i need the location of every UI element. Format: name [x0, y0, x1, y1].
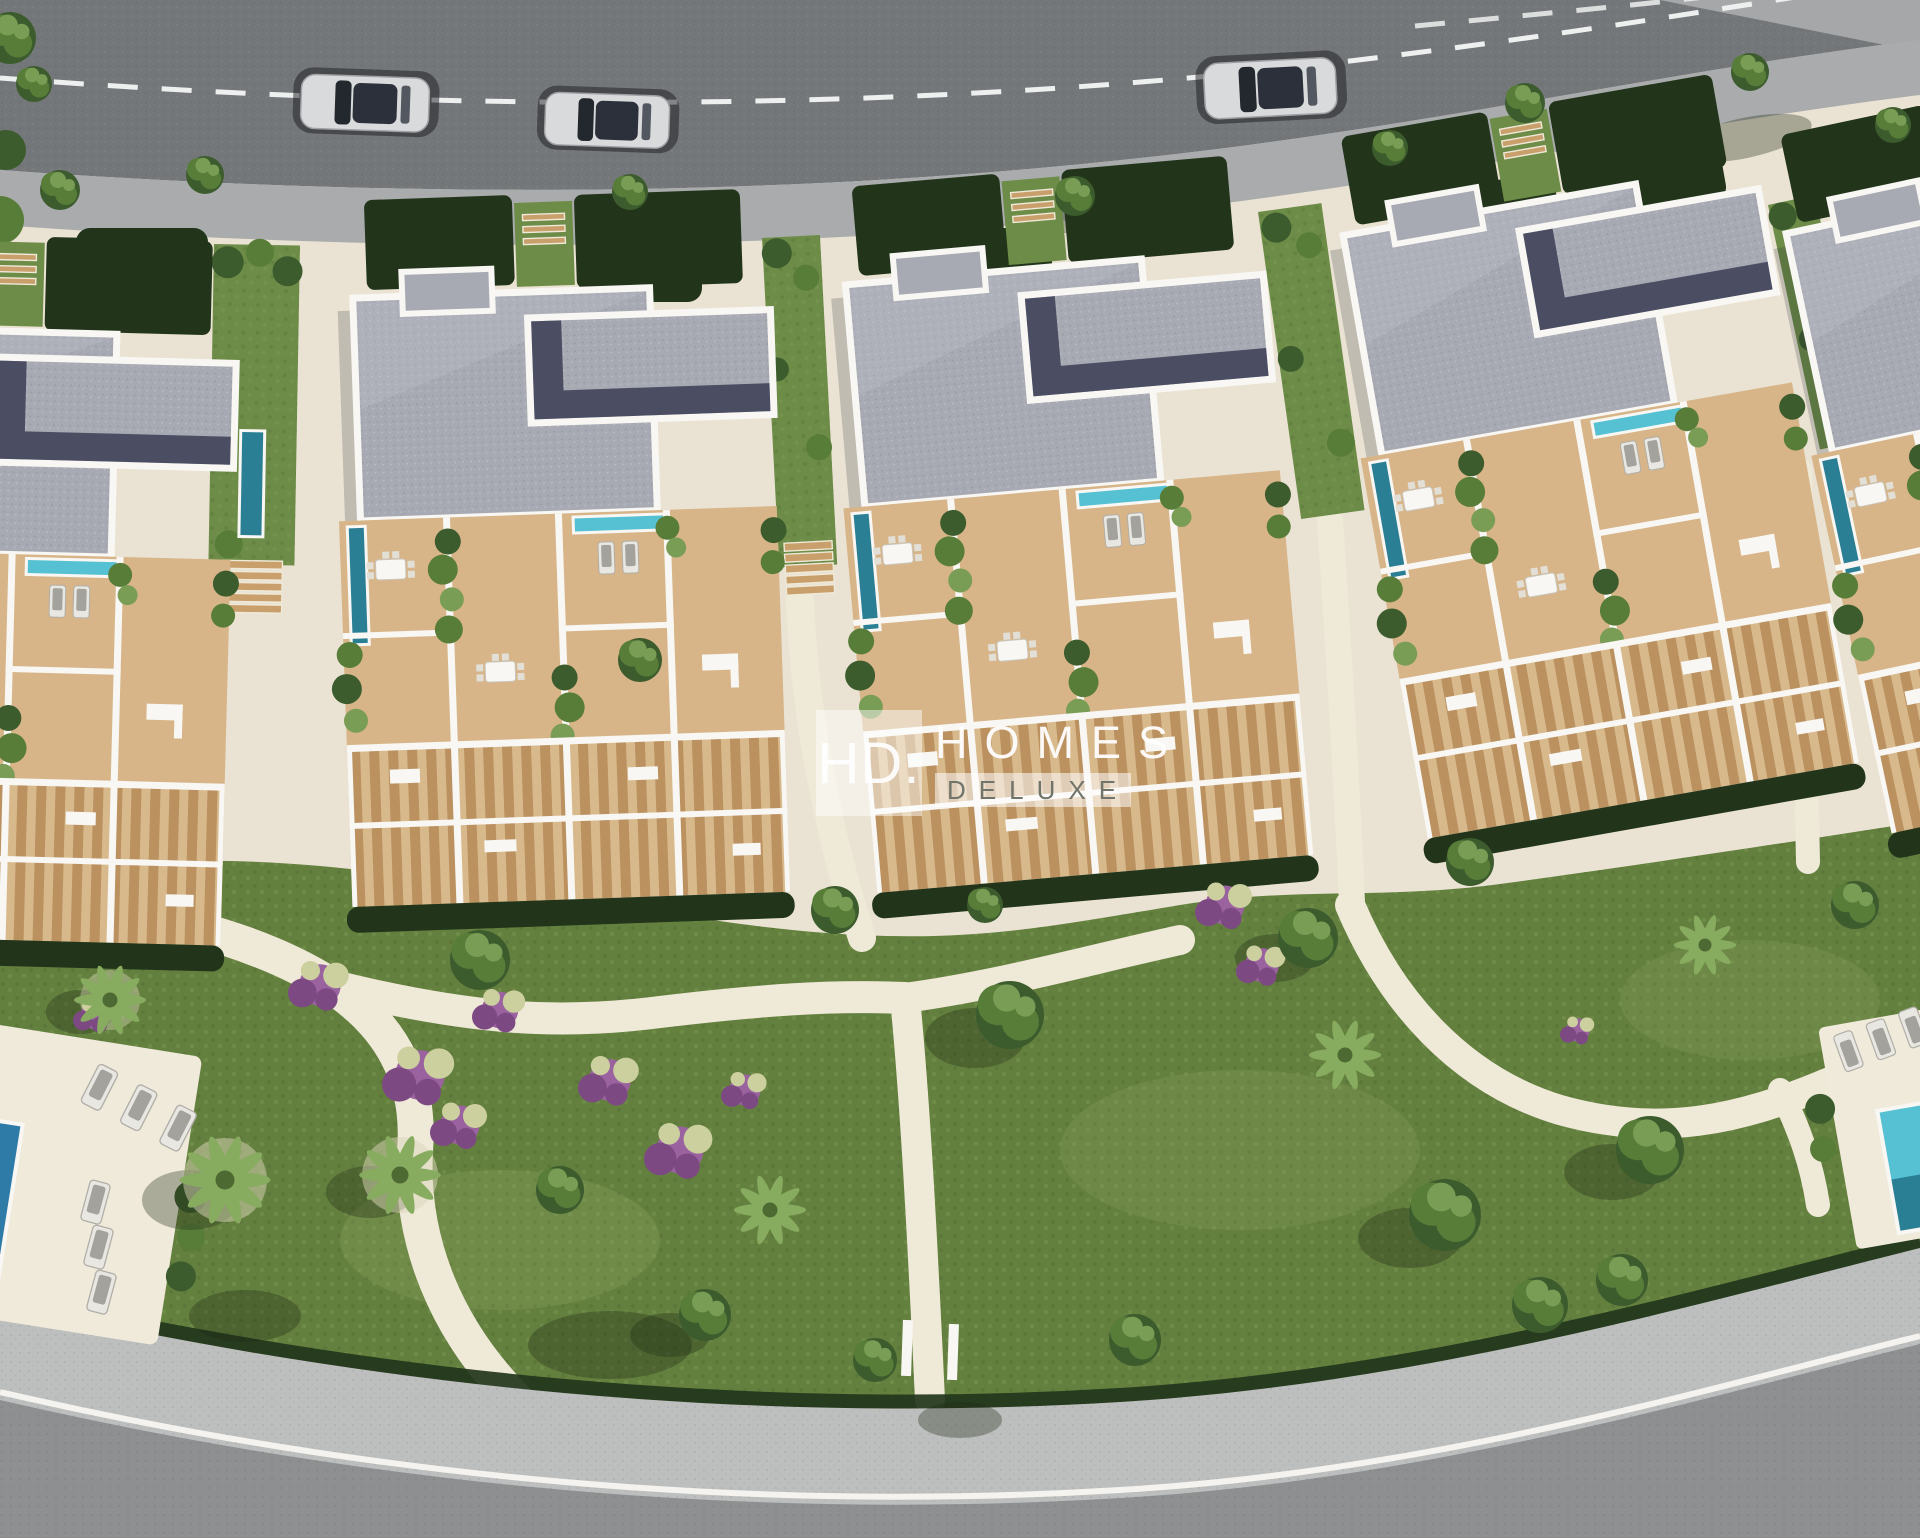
watermark-deluxe-text: DELUXE — [935, 773, 1131, 807]
aerial-site-render: HD. HOMES DELUXE — [0, 0, 1920, 1538]
watermark-wordmark: HOMES DELUXE — [935, 720, 1185, 807]
hd-logo-icon: HD. — [816, 710, 922, 816]
car-2 — [536, 85, 680, 154]
watermark-homes-text: HOMES — [935, 720, 1185, 765]
car-3 — [1194, 49, 1348, 125]
watermark-logo: HD. HOMES DELUXE — [816, 710, 1185, 816]
car-1 — [292, 67, 440, 138]
hd-logo-text: HD. — [818, 730, 921, 797]
